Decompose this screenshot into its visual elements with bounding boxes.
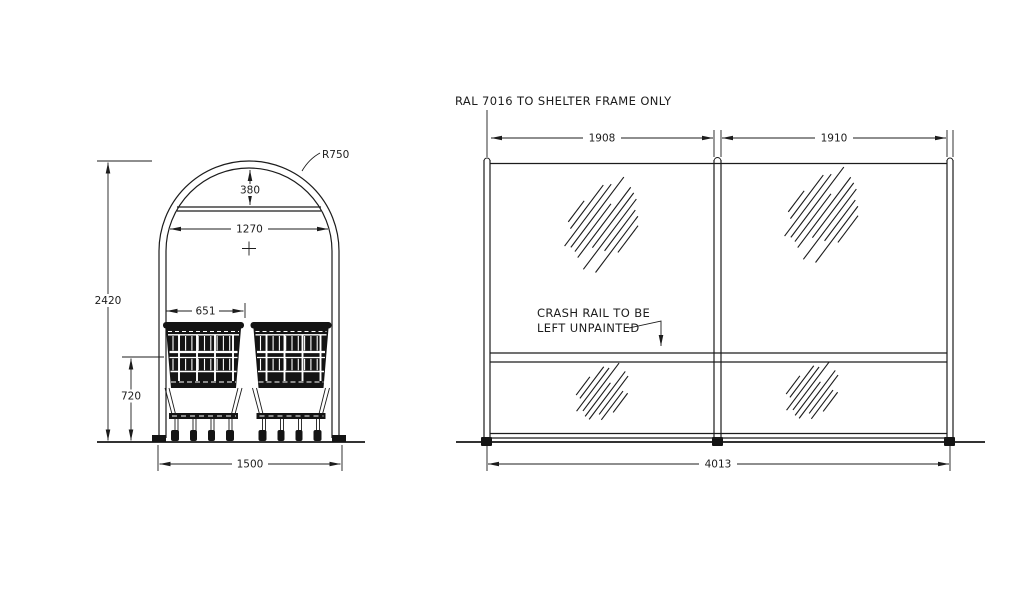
hatch-line: [811, 390, 833, 419]
hatch-line: [795, 194, 831, 242]
hatch-line: [787, 367, 820, 410]
hatch-line: [788, 191, 804, 212]
frame-finish-note: RAL 7016 TO SHELTER FRAME ONLY: [455, 94, 672, 157]
glass-panel-hatch-lower-right: [786, 362, 838, 419]
frame-finish-note-text: RAL 7016 TO SHELTER FRAME ONLY: [455, 94, 672, 108]
technical-drawing-page: R750 380 1270 651 2420: [0, 0, 1028, 600]
radius-leader-line: [302, 153, 320, 171]
dimension-inner-width: 1270: [170, 223, 328, 236]
side-elevation-view: 1908 1910 4013 RAL 7016 TO SHELTER FRAME…: [455, 94, 985, 471]
hatch-line: [577, 368, 610, 411]
hatch-line: [599, 376, 628, 414]
hatch-line: [613, 393, 627, 412]
glass-panel-hatch-upper-left: [565, 177, 638, 272]
crash-rail-note: CRASH RAIL TO BE LEFT UNPAINTED: [537, 306, 661, 346]
hatch-line: [575, 204, 611, 252]
dim-label-base-width: 1500: [237, 459, 264, 471]
dim-label-arch-rise: 380: [240, 185, 260, 197]
dimension-bay-1: 1908: [491, 132, 713, 145]
crash-rail-note-line1: CRASH RAIL TO BE: [537, 306, 650, 320]
post-right-cap: [947, 158, 953, 161]
hatch-line: [601, 391, 623, 420]
hatch-line: [578, 187, 631, 257]
end-elevation-view: R750 380 1270 651 2420: [90, 149, 365, 471]
hatch-line: [583, 199, 636, 269]
hatch-line: [565, 184, 612, 246]
dimension-bay-2: 1910: [722, 132, 946, 145]
dimension-overall-length: 4013: [487, 446, 950, 471]
hatch-line: [568, 201, 584, 222]
hatch-line: [790, 366, 814, 398]
hatch-line: [585, 383, 610, 417]
hatch-line: [790, 175, 823, 219]
dimension-base-width: 1500: [158, 445, 342, 471]
dimension-trolley-width: 651: [167, 303, 246, 318]
hatch-line: [785, 174, 832, 236]
hatch-line: [570, 185, 603, 229]
shelter-posts: [481, 158, 955, 447]
dim-label-radius: R750: [322, 149, 349, 161]
dimension-arch-rise: 380: [236, 170, 264, 205]
hatch-line: [580, 367, 604, 399]
dimension-crash-rail-height: 720: [116, 357, 164, 441]
hatch-line: [823, 392, 837, 411]
post-middle-cap: [714, 158, 721, 161]
dim-label-overall-length: 4013: [705, 459, 732, 471]
trolley-left: [163, 322, 244, 441]
hatch-line: [576, 377, 590, 395]
hatch-line: [798, 177, 851, 247]
dim-label-trolley-width: 651: [195, 306, 215, 318]
arch-outer: [159, 161, 339, 251]
hatch-line: [791, 167, 844, 237]
glass-panel-hatch-upper-right: [785, 167, 858, 262]
drawing-canvas: R750 380 1270 651 2420: [0, 0, 1028, 600]
dim-label-bay-1: 1908: [589, 133, 616, 145]
leg-right-foot: [332, 435, 346, 442]
hatch-line: [803, 189, 856, 259]
dim-label-crash-rail-height: 720: [121, 391, 141, 403]
arch-inner: [166, 168, 332, 251]
glass-panel-hatch-lower-left: [576, 363, 628, 420]
dim-label-overall-height: 2420: [95, 295, 122, 307]
hatch-line: [786, 376, 800, 394]
hatch-line: [795, 382, 820, 416]
hatch-line: [809, 375, 838, 413]
shelter-rails: [490, 164, 947, 439]
leg-left-foot: [152, 435, 166, 442]
dim-label-inner-width: 1270: [236, 224, 263, 236]
hatch-line: [571, 177, 624, 247]
radius-callout: R750: [302, 149, 349, 171]
dim-label-bay-2: 1910: [821, 133, 848, 145]
trolley-right: [251, 322, 332, 441]
post-left-cap: [484, 158, 490, 161]
center-mark: [242, 242, 256, 256]
crash-rail-note-line2: LEFT UNPAINTED: [537, 321, 640, 335]
shelter-arch-frame: [152, 161, 346, 442]
